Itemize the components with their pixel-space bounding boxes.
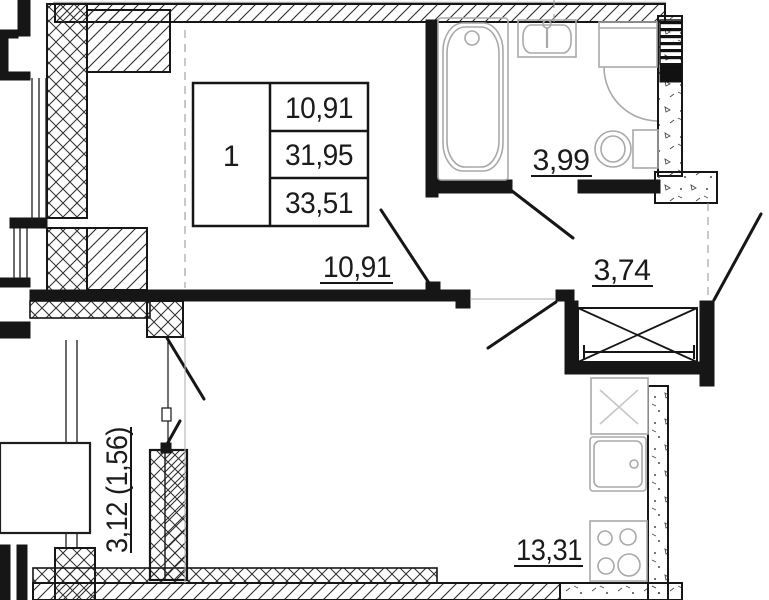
left-wall-lower	[47, 228, 87, 300]
kitchen-sink-icon	[590, 437, 646, 491]
bathroom-wall-jut	[655, 172, 717, 203]
unit-number: 1	[223, 140, 239, 173]
bathroom-bottom-wall-left	[426, 180, 512, 193]
shower-cabin-icon	[599, 22, 657, 121]
bedroom-south-wall	[30, 290, 470, 301]
bottom-wall-insulation	[33, 568, 437, 583]
balcony-door-stub	[147, 301, 183, 337]
stove-icon	[590, 521, 647, 581]
kitchen-cabinet-icon	[591, 378, 648, 434]
left-wall-mid-block	[87, 228, 147, 290]
vent-grille-icon	[660, 20, 682, 82]
svg-text:3,12 (1,56): 3,12 (1,56)	[101, 427, 134, 553]
svg-text:13,31: 13,31	[516, 534, 582, 567]
balcony-pier	[150, 450, 187, 580]
area-table: 1 10,91 31,95 33,51	[193, 83, 368, 226]
svg-text:3,99: 3,99	[533, 144, 590, 177]
balcony-door	[161, 338, 204, 453]
svg-text:3,74: 3,74	[594, 254, 651, 287]
bathroom-left-wall	[426, 20, 438, 197]
wash-basin-icon	[518, 20, 576, 57]
kitchen-right-wall	[648, 386, 668, 600]
table-area: 31,95	[285, 139, 353, 172]
hall-area-label: 3,74	[592, 254, 653, 287]
table-total-area: 33,51	[285, 187, 353, 220]
kitchen-living-area-label: 13,31	[514, 534, 583, 567]
kitchen-fixtures	[590, 378, 648, 581]
bathtub-icon	[438, 18, 508, 180]
toilet-icon	[595, 130, 658, 168]
balcony-top-insulation	[30, 301, 150, 318]
balcony-glazing	[0, 340, 90, 548]
bedroom-window	[14, 78, 46, 278]
bathroom-area-label: 3,99	[531, 144, 592, 177]
hall-door-leaf	[488, 302, 556, 348]
vent-shaft	[556, 290, 714, 386]
bathroom-door-leaf	[512, 191, 573, 238]
bedroom-area-label: 10,91	[320, 251, 393, 284]
balcony-area-label: 3,12 (1,56)	[101, 427, 134, 553]
svg-text:10,91: 10,91	[323, 251, 391, 284]
entry-door-leaf	[714, 214, 761, 300]
left-wall-corner-block	[87, 10, 170, 72]
left-wall-upper	[47, 4, 87, 218]
bathroom-bottom-wall-right	[578, 180, 660, 193]
floor-plan: 1 10,91 31,95 33,51 10,91 3,99 3,74 13,3…	[0, 0, 769, 600]
table-living-area: 10,91	[285, 92, 353, 125]
bottom-wall	[33, 583, 560, 600]
